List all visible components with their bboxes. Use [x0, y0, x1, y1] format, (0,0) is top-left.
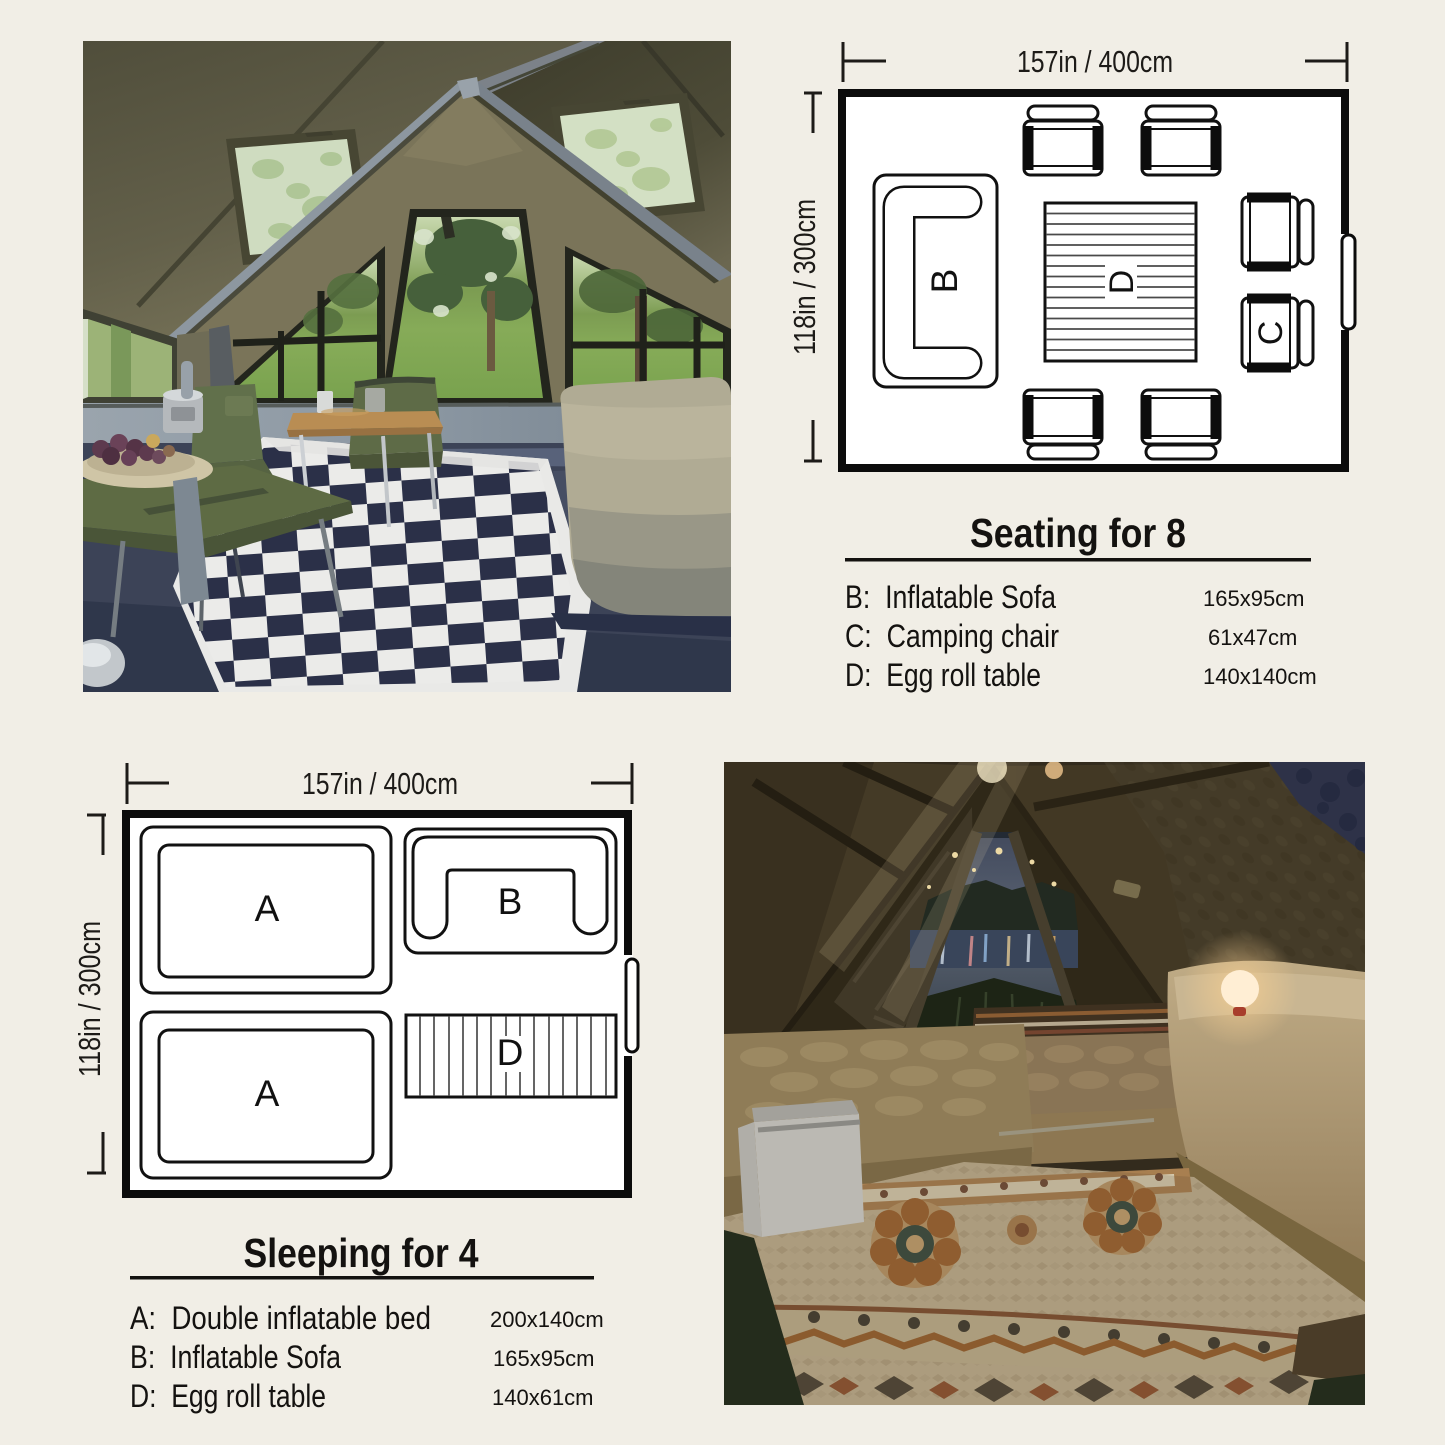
- svg-text:D: D: [1103, 270, 1141, 295]
- svg-text:118in / 300cm: 118in / 300cm: [787, 199, 822, 355]
- svg-text:B: B: [498, 881, 523, 922]
- svg-text:D: D: [497, 1032, 524, 1073]
- svg-text:A: A: [255, 888, 280, 929]
- svg-text:165x95cm: 165x95cm: [493, 1346, 595, 1371]
- svg-text:D: Egg roll table: D: Egg roll table: [845, 657, 1041, 693]
- svg-text:157in / 400cm: 157in / 400cm: [302, 766, 458, 801]
- svg-text:Sleeping for 4: Sleeping for 4: [244, 1230, 479, 1276]
- svg-text:A: Double inflatable bed: A: Double inflatable bed: [130, 1300, 431, 1336]
- svg-text:B: Inflatable Sofa: B: Inflatable Sofa: [845, 579, 1056, 615]
- svg-text:Seating for 8: Seating for 8: [970, 510, 1186, 556]
- svg-text:157in / 400cm: 157in / 400cm: [1017, 44, 1173, 79]
- svg-text:165x95cm: 165x95cm: [1203, 586, 1305, 611]
- svg-text:140x61cm: 140x61cm: [492, 1385, 594, 1410]
- svg-text:C: C: [1252, 321, 1290, 346]
- svg-text:A: A: [255, 1073, 280, 1114]
- svg-text:B: B: [924, 269, 965, 294]
- svg-text:B: Inflatable Sofa: B: Inflatable Sofa: [130, 1339, 341, 1375]
- svg-text:140x140cm: 140x140cm: [1203, 664, 1317, 689]
- svg-text:61x47cm: 61x47cm: [1208, 625, 1297, 650]
- svg-text:118in / 300cm: 118in / 300cm: [72, 921, 107, 1077]
- svg-text:C: Camping chair: C: Camping chair: [845, 618, 1059, 654]
- svg-text:D: Egg roll table: D: Egg roll table: [130, 1378, 326, 1414]
- svg-text:200x140cm: 200x140cm: [490, 1307, 604, 1332]
